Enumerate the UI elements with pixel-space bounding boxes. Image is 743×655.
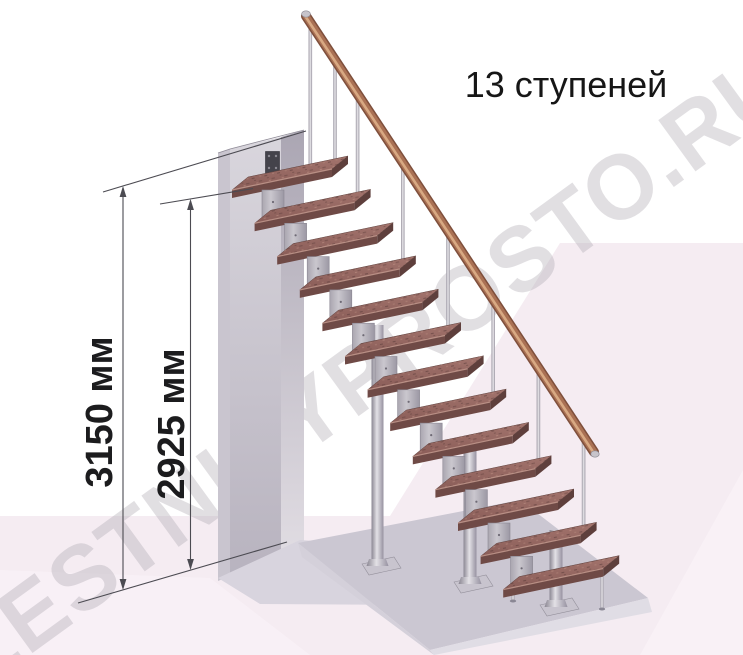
stringer-bolt: [385, 367, 387, 369]
stringer-bolt: [453, 467, 455, 469]
baluster: [491, 300, 495, 398]
dimension-label-total: 3150 мм: [79, 336, 121, 487]
baluster: [582, 437, 586, 531]
stringer-bolt: [475, 501, 477, 503]
wall-front-strip: [218, 149, 230, 581]
handrail-end-cap: [591, 451, 599, 457]
stringer-bolt: [430, 434, 432, 436]
column-foot: [459, 577, 482, 584]
column-foot: [367, 559, 389, 566]
stringer-bolt: [498, 534, 500, 536]
column-foot: [545, 600, 568, 607]
arrow-up-icon: [187, 199, 194, 210]
wall-column: [218, 130, 304, 581]
stringer-bolt: [317, 268, 319, 270]
stringer-bolt: [272, 201, 274, 203]
stringer-bolt: [521, 567, 523, 569]
diagram-canvas: LESTNICYPROSTO.RU: [0, 0, 743, 655]
baluster: [446, 232, 450, 332]
steps-count-title: 13 ступеней: [465, 64, 667, 105]
baluster: [356, 95, 360, 198]
rail-start-post: [309, 22, 313, 173]
wall-side-face: [281, 130, 304, 568]
stringer-bolt: [408, 401, 410, 403]
handrail-top-cap: [302, 11, 311, 17]
support-leg: [600, 577, 603, 609]
staircase-diagram: LESTNICYPROSTO.RU: [0, 0, 743, 655]
leg-foot: [599, 608, 605, 611]
stringer-bolt: [295, 234, 297, 236]
dimension-label-top-step: 2925 мм: [151, 348, 193, 499]
baluster: [333, 61, 337, 165]
stringer-bolt: [340, 301, 342, 303]
arrow-up-icon: [120, 186, 127, 197]
wall-bracket: [266, 152, 280, 174]
baluster: [401, 164, 405, 265]
stringer-bolt: [362, 334, 364, 336]
baluster: [537, 369, 541, 465]
leg-foot: [510, 600, 516, 603]
